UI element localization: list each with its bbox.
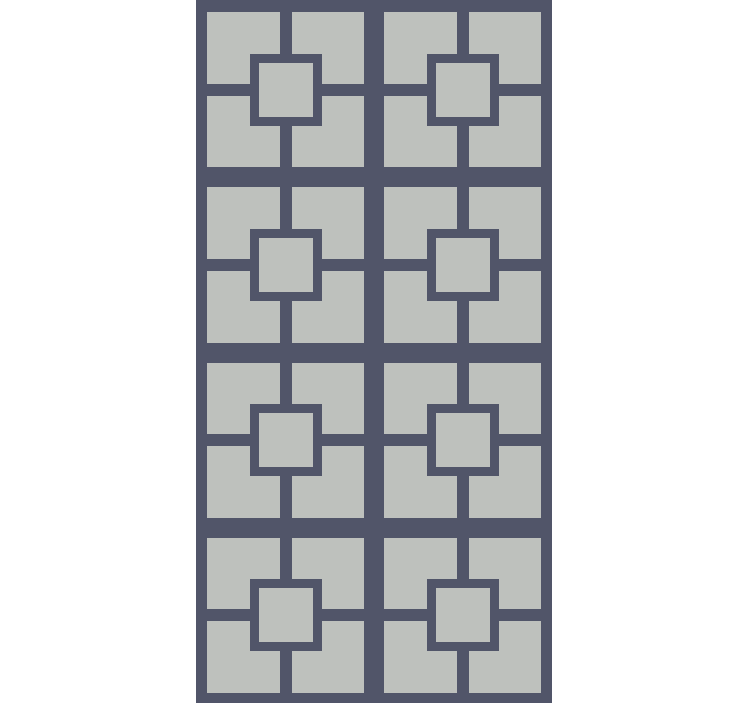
tile-center-square (436, 238, 490, 292)
tile-center-square (436, 413, 490, 467)
tile-center-square (259, 238, 313, 292)
tile-center-square (259, 63, 313, 117)
pattern-tile (207, 12, 364, 167)
pattern-tile (384, 12, 541, 167)
tile-center-square (259, 588, 313, 642)
pattern-tile (384, 363, 541, 518)
pattern-tile (207, 538, 364, 693)
tile-center-square (436, 588, 490, 642)
pattern-tile (207, 363, 364, 518)
pattern-panel (196, 0, 552, 703)
pattern-tile (207, 187, 364, 342)
tile-center-square (436, 63, 490, 117)
pattern-tile (384, 187, 541, 342)
pattern-tile (384, 538, 541, 693)
tile-center-square (259, 413, 313, 467)
